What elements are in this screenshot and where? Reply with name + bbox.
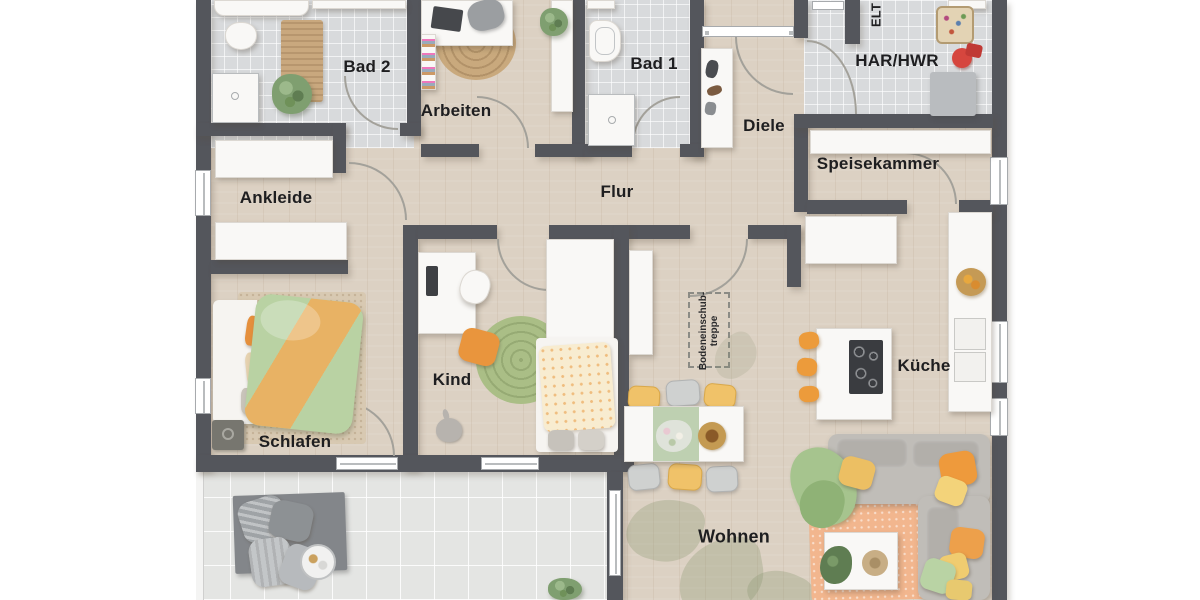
label-diele: Diele: [743, 116, 785, 136]
wall-bad2-bottom: [196, 123, 346, 136]
cooktop: [849, 340, 883, 394]
wall-har-bottom: [794, 114, 993, 128]
terrace-slider-wohnen: [609, 490, 621, 576]
sink-bad1-basin: [595, 27, 615, 55]
label-flur: Flur: [601, 182, 634, 202]
wall-schlafen-kind: [403, 225, 418, 470]
label-bad2: Bad 2: [343, 57, 390, 77]
bad1-counter: [587, 0, 615, 9]
terrace-tray: [300, 544, 336, 580]
monitor-kind: [426, 266, 438, 296]
window-wohnen: [990, 398, 1008, 436]
label-bad1: Bad 1: [630, 54, 677, 74]
dining-chair-5: [667, 463, 703, 491]
wall-arbeiten-bottom-r: [535, 144, 590, 157]
kitchen-shelf-b: [954, 352, 986, 382]
nook-cabinet: [629, 250, 653, 355]
stool-3: [798, 385, 819, 402]
wall-bad2-stub: [400, 123, 421, 136]
shower-bad1-drain: [608, 116, 616, 124]
label-kind: Kind: [433, 370, 472, 390]
flur-plant: [540, 8, 568, 36]
table-bowl: [698, 422, 726, 450]
label-ankleide: Ankleide: [240, 188, 312, 208]
label-schlafen: Schlafen: [259, 432, 331, 452]
label-elt: ELT: [869, 3, 884, 27]
fruit-bowl: [956, 268, 986, 296]
shower-bad2-drain: [231, 92, 239, 100]
label-attic-hatch-line1: Bodeneinschub-: [698, 292, 709, 370]
kind-bed-pillow-1: [548, 430, 574, 450]
kind-wardrobe: [546, 239, 614, 339]
wall-terrace: [196, 455, 634, 472]
wardrobe-top: [215, 140, 333, 178]
window-ankleide: [195, 170, 211, 216]
wall-diele-har-b: [794, 114, 808, 212]
dining-chair-2: [665, 379, 701, 407]
window-schlafen: [195, 378, 211, 414]
terrace-slider-schlafen: [336, 457, 398, 470]
label-wohnen: Wohnen: [698, 527, 770, 548]
wall-arbeiten-bad1: [572, 0, 585, 157]
toy-bunny: [436, 418, 462, 442]
wall-ankleide-stub: [333, 123, 346, 173]
laundry-basket: [936, 6, 974, 44]
kitchen-counter-top: [805, 216, 897, 264]
terrace-plant: [548, 578, 582, 600]
wall-bad2-arbeiten: [407, 0, 421, 136]
label-kueche: Küche: [898, 356, 951, 376]
bookshelf: [421, 34, 436, 90]
terrace-edge: [196, 472, 204, 600]
terrace-slider-kind: [481, 457, 539, 470]
wall-arbeiten-bottom-l: [421, 144, 479, 157]
entrance-door-leaf: [702, 26, 794, 37]
window-speisekammer: [990, 157, 1008, 205]
pantry-shelf: [810, 130, 991, 154]
wardrobe-bottom: [215, 222, 347, 260]
label-speisekammer: Speisekammer: [817, 154, 939, 174]
kind-bed-pillow-2: [578, 430, 604, 450]
window-kueche: [990, 321, 1008, 383]
bed-duvet: [243, 293, 364, 436]
kitchen-counter-right: [948, 212, 992, 412]
nightstand-knob: [222, 428, 234, 440]
laptop: [431, 6, 464, 32]
kind-bed-duvet: [538, 342, 616, 433]
floor-plan: Bad 2 Arbeiten Bad 1 Diele ELT HAR/HWR S…: [0, 0, 1200, 600]
wall-diele-har-a: [794, 0, 808, 38]
wall-kind-top-l: [418, 225, 497, 239]
stool-2: [796, 357, 818, 377]
label-arbeiten: Arbeiten: [421, 101, 492, 121]
dining-chair-4: [627, 462, 662, 491]
wall-speise-bottom-l: [807, 200, 907, 214]
bad2-plant: [272, 74, 312, 114]
wall-ankleide-schlafen: [211, 260, 348, 274]
wall-elt: [845, 0, 860, 44]
sofa-pillow-yellow-4: [945, 579, 973, 600]
bathtub: [214, 0, 309, 16]
wall-right: [992, 0, 1007, 600]
toilet: [225, 22, 257, 50]
label-attic-hatch-line2: treppe: [709, 292, 720, 370]
dining-chair-6: [705, 465, 738, 493]
coffee-table-tray: [862, 550, 888, 576]
kitchen-shelf-a: [954, 318, 986, 350]
label-har: HAR/HWR: [855, 51, 939, 71]
elt-door-leaf: [812, 1, 844, 10]
label-attic-hatch: Bodeneinschub- treppe: [698, 292, 720, 370]
bath-counter: [312, 0, 406, 9]
wall-flur-kueche-stub: [787, 225, 801, 287]
washing-machine: [930, 72, 976, 116]
